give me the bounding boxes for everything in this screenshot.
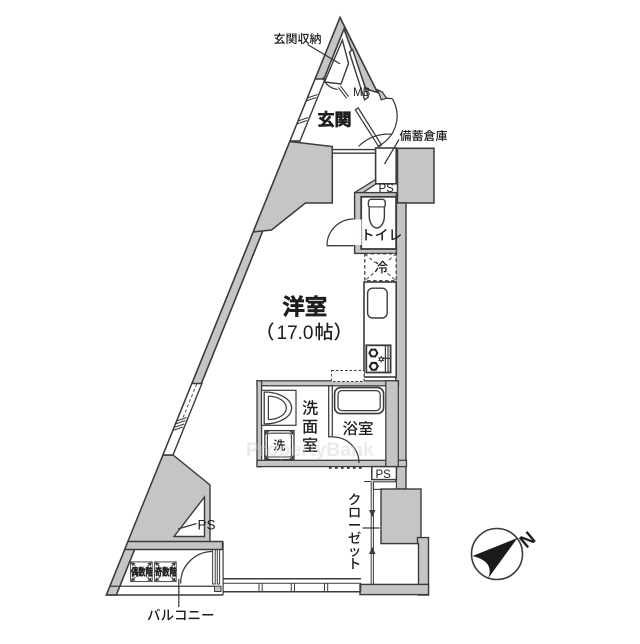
svg-text:PropertyBank: PropertyBank xyxy=(246,439,374,461)
svg-text:MB: MB xyxy=(353,87,371,99)
svg-text:17.0: 17.0 xyxy=(277,323,314,344)
svg-text:PS: PS xyxy=(376,469,392,481)
svg-text:PS: PS xyxy=(198,518,216,533)
